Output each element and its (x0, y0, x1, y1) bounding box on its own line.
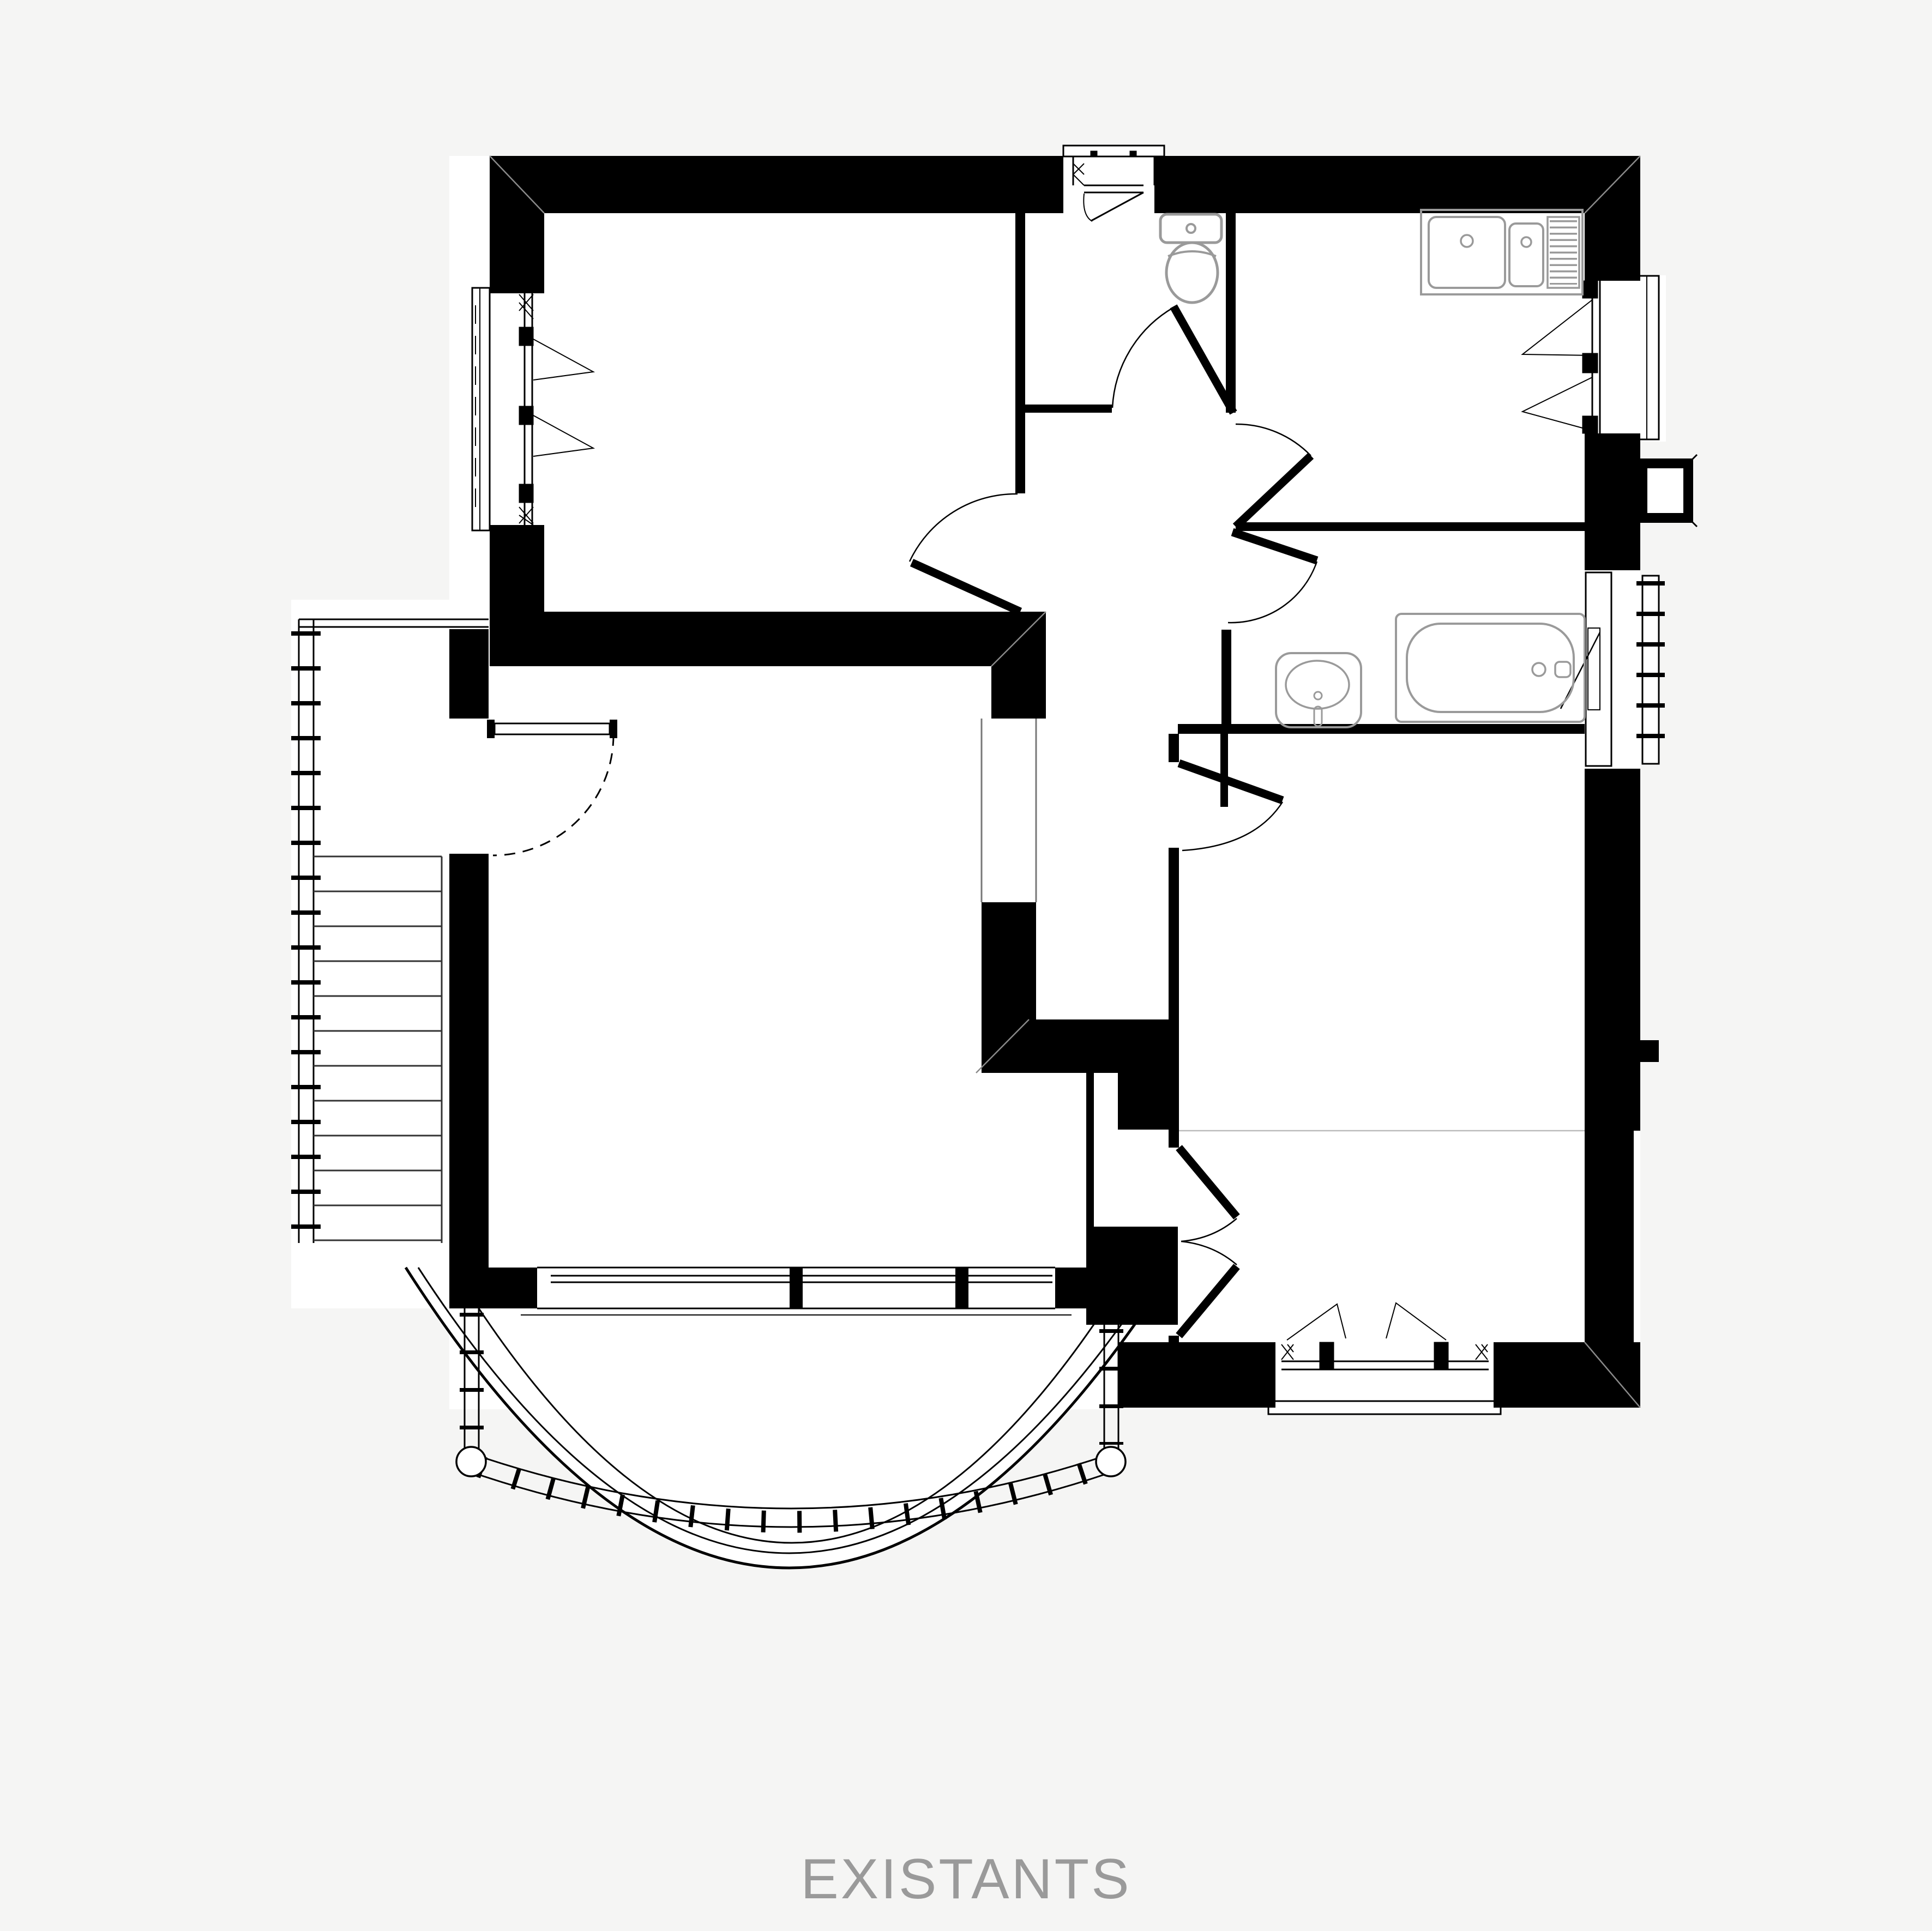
wall-left-upper (490, 213, 544, 293)
floor-areas (291, 146, 1666, 1568)
wall-bedroom2-left-1 (1169, 734, 1179, 762)
wall-stair-lower (449, 854, 489, 1308)
wall-wc-right (1226, 213, 1236, 413)
wall-bedroom1-bottom-end (991, 666, 1046, 719)
floor-plan-sheet: EXISTANTS (0, 0, 1932, 1931)
wall-bedroom2-bottom-left (1118, 1342, 1275, 1408)
mullion-living-2 (955, 1268, 968, 1308)
chimney-box (1642, 463, 1688, 518)
w6-mullion-2 (1434, 1342, 1448, 1369)
wall-right-2 (1585, 433, 1640, 570)
wall-wc-bottom (1025, 405, 1112, 413)
house-floor (449, 156, 1640, 1409)
bath-window-floor (1585, 570, 1613, 769)
wall-bathroom-bottom (1178, 724, 1585, 734)
wall-top-left-segment (490, 156, 1063, 213)
sheet-title: EXISTANTS (0, 1847, 1932, 1912)
w1-tab-2 (1130, 151, 1136, 157)
floor-plan-drawing (0, 0, 1932, 1931)
wall-kitchen-bottom (1236, 522, 1585, 531)
wall-right-1 (1585, 213, 1640, 281)
wall-right-4 (1585, 1131, 1634, 1344)
wall-bathroom-stub (1220, 734, 1228, 807)
wall-bedroom2-left-2 (1169, 848, 1179, 1057)
w3-mullion-3 (1582, 416, 1598, 433)
wall-right-3 (1585, 769, 1640, 1131)
wall-wc-left (1015, 213, 1025, 493)
wall-bathroom-left (1221, 630, 1231, 734)
door-entry-jamb-left (487, 720, 495, 738)
wall-baywindow-right-block (1055, 1268, 1133, 1308)
wall-bedroom1-bottom (490, 612, 1046, 666)
door-entry-leaf (495, 723, 610, 734)
w6-mullion-1 (1320, 1342, 1334, 1369)
wall-hall-living (982, 902, 1036, 1073)
bay-newel-ball-left (456, 1447, 486, 1476)
wall-stair-upper (449, 629, 489, 719)
w2-mullion-1 (519, 327, 533, 346)
bay-newel-ball-right (1096, 1447, 1126, 1476)
bottom-window-floor (1268, 1342, 1501, 1414)
wall-baywindow-left-block (449, 1268, 537, 1308)
wall-bedroom2-left-3 (1169, 1130, 1179, 1148)
w3-mullion-1 (1582, 281, 1598, 298)
w3-mullion-2 (1582, 353, 1598, 373)
w2-mullion-2 (519, 406, 533, 425)
wall-right-nub (1640, 1040, 1659, 1062)
w2-mullion-3 (519, 484, 533, 503)
wall-bedroom2-left-block (1118, 1057, 1179, 1130)
mullion-living-1 (790, 1268, 803, 1308)
wall-bedroom2-bottom-right (1494, 1342, 1640, 1408)
wall-top-right-segment (1154, 156, 1640, 213)
wall-closet-partition (1086, 1073, 1094, 1227)
chimney-flue (1634, 455, 1697, 527)
w1-tab-1 (1091, 151, 1097, 157)
